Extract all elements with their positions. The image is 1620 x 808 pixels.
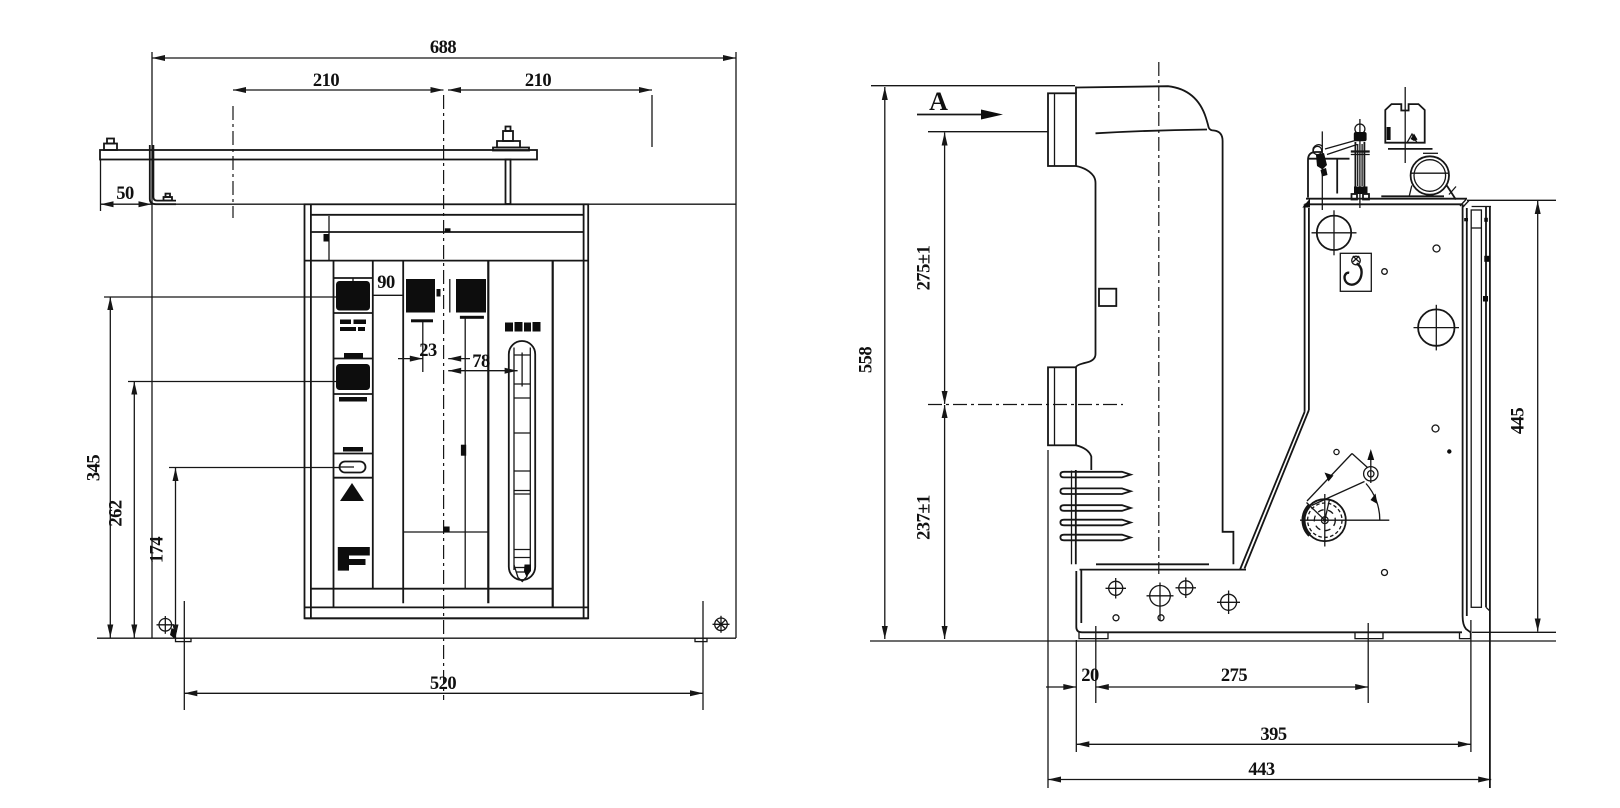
svg-text:520: 520 (430, 674, 457, 694)
svg-text:20: 20 (1081, 666, 1099, 686)
svg-text:174: 174 (148, 537, 168, 564)
svg-text:275±1: 275±1 (915, 245, 935, 290)
svg-text:275: 275 (1221, 666, 1248, 686)
svg-text:A: A (929, 87, 948, 116)
svg-text:445: 445 (1509, 408, 1529, 435)
svg-text:237±1: 237±1 (915, 495, 935, 540)
svg-text:78: 78 (472, 352, 490, 372)
svg-text:210: 210 (525, 71, 552, 91)
svg-text:50: 50 (116, 184, 134, 204)
svg-text:443: 443 (1248, 760, 1275, 780)
svg-text:688: 688 (430, 38, 457, 58)
svg-text:395: 395 (1260, 725, 1287, 745)
svg-text:90: 90 (377, 273, 395, 293)
svg-text:210: 210 (313, 71, 340, 91)
svg-text:345: 345 (85, 455, 105, 482)
svg-text:262: 262 (107, 500, 127, 527)
svg-text:558: 558 (857, 347, 877, 374)
